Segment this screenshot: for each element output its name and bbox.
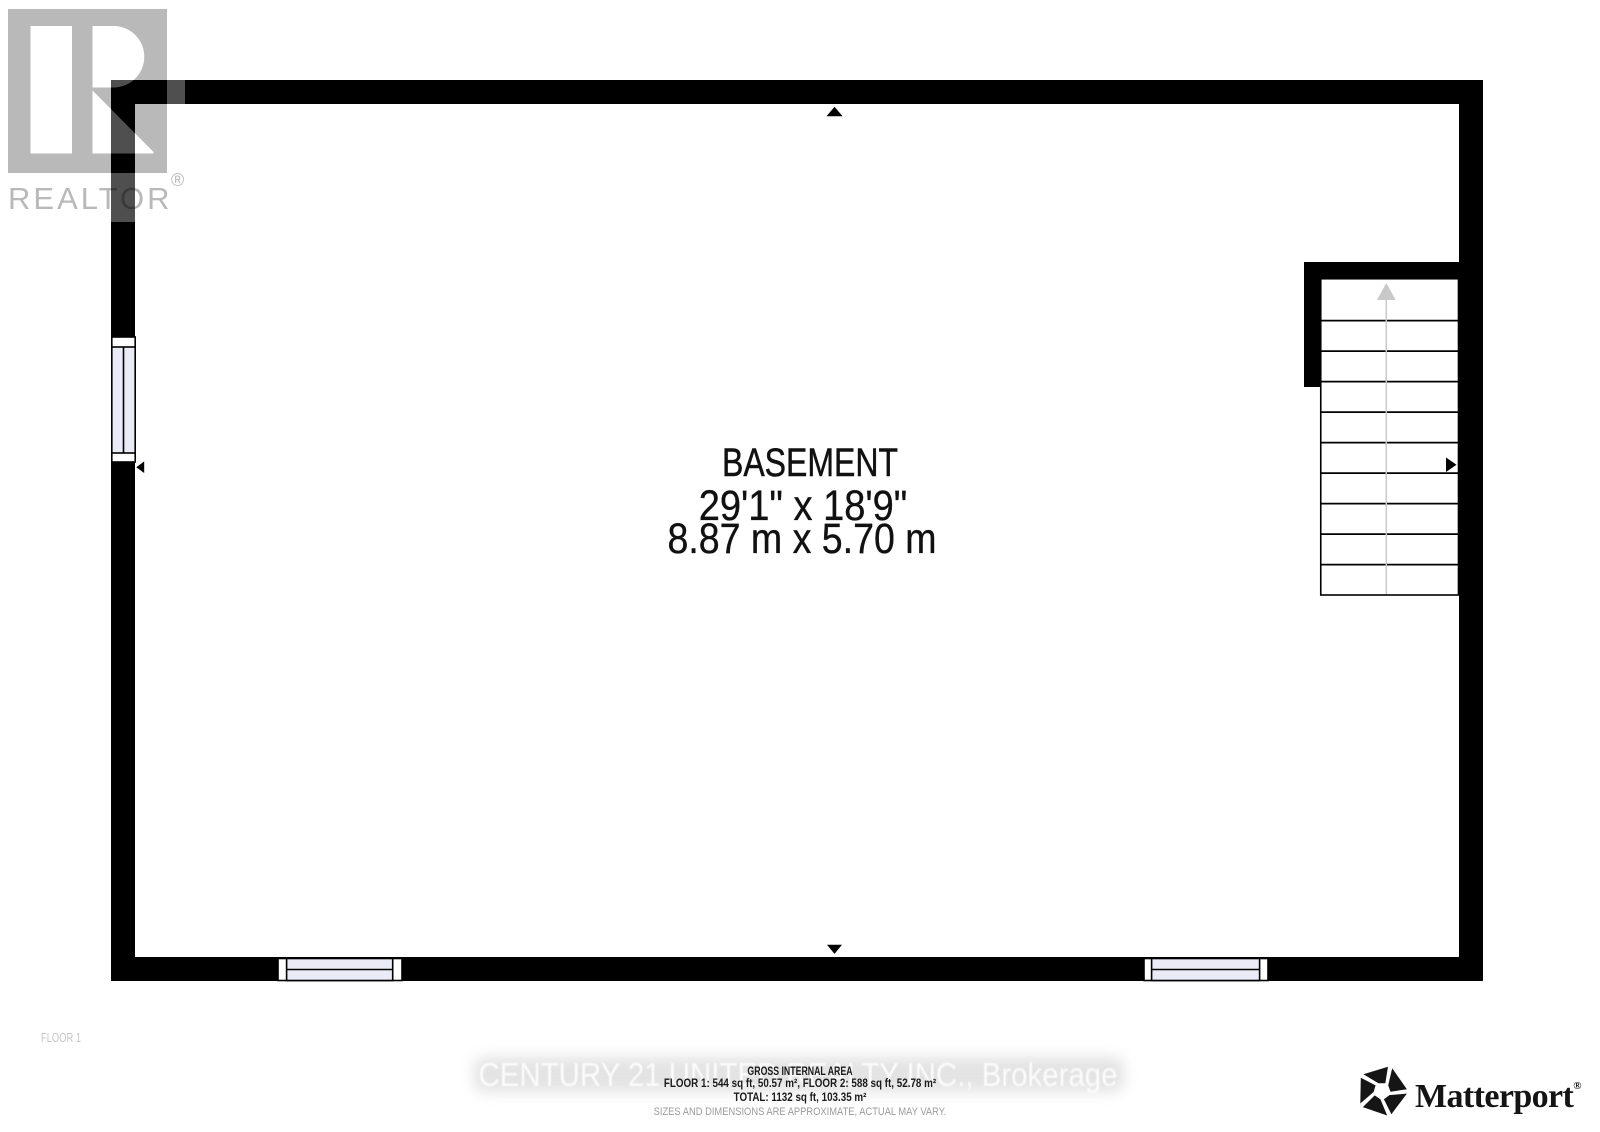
svg-text:®: ® xyxy=(171,170,184,190)
svg-text:REALTOR: REALTOR xyxy=(8,181,173,216)
